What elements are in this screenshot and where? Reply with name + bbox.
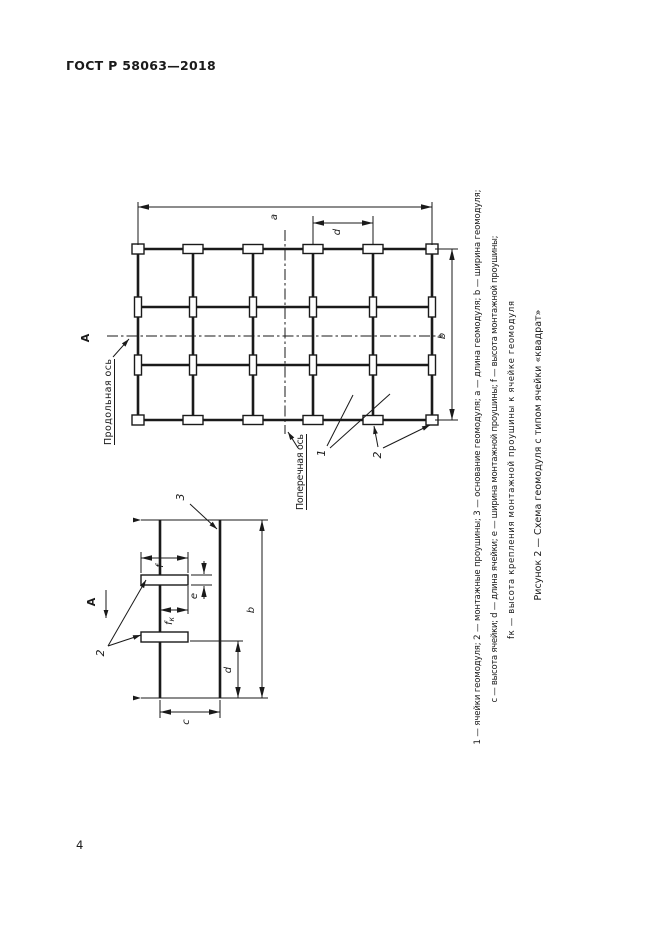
dim-label-c: c <box>181 719 192 725</box>
plan-dimensions: a d b <box>138 202 458 420</box>
section-lugs <box>141 575 188 642</box>
dim-label-d-plan: d <box>332 228 343 235</box>
callout-lugs-number-plan: 2 <box>371 452 384 459</box>
dim-label-b-section: b <box>246 607 257 613</box>
figure-caption: Рисунок 2 — Схема геомодуля с типом ячей… <box>533 309 544 600</box>
dim-label-d-section: d <box>223 666 234 673</box>
longitudinal-axis-label: Продольная ось <box>103 359 114 445</box>
page-number: 4 <box>76 838 83 852</box>
section-view: f e fк d b <box>85 494 268 725</box>
dim-label-b-plan: b <box>437 333 448 339</box>
mounting-lug-2 <box>141 632 188 642</box>
footnote-line-3: fк — высота крепления монтажной проушины… <box>507 301 517 639</box>
document-page: ГОСТ Р 58063—2018 <box>0 0 661 935</box>
view-a-label-plan: A <box>79 333 92 342</box>
dim-label-a: a <box>269 214 280 220</box>
callout-cells-number: 1 <box>315 450 328 457</box>
view-a-label-section: A <box>85 597 98 606</box>
footnote-line-1: 1 — ячейки геомодуля; 2 — монтажные проу… <box>473 190 483 745</box>
dim-label-e: e <box>189 593 200 599</box>
plan-view: a d b 1 2 A Продольная ось Поперечная ос… <box>79 202 458 510</box>
figure-footnote: 1 — ячейки геомодуля; 2 — монтажные проу… <box>473 190 517 745</box>
plan-axis-lines <box>107 230 443 434</box>
dim-label-fk: fк <box>164 617 176 626</box>
figure-drawing: a d b 1 2 A Продольная ось Поперечная ос… <box>0 0 661 935</box>
callout-base-number: 3 <box>174 494 187 501</box>
plan-callouts: 1 2 A <box>79 333 430 458</box>
footnote-line-2: c — высота ячейки; d — длина ячейки; e —… <box>490 236 500 703</box>
mounting-lug-1 <box>141 575 188 585</box>
callout-lugs-number-section: 2 <box>94 650 107 657</box>
